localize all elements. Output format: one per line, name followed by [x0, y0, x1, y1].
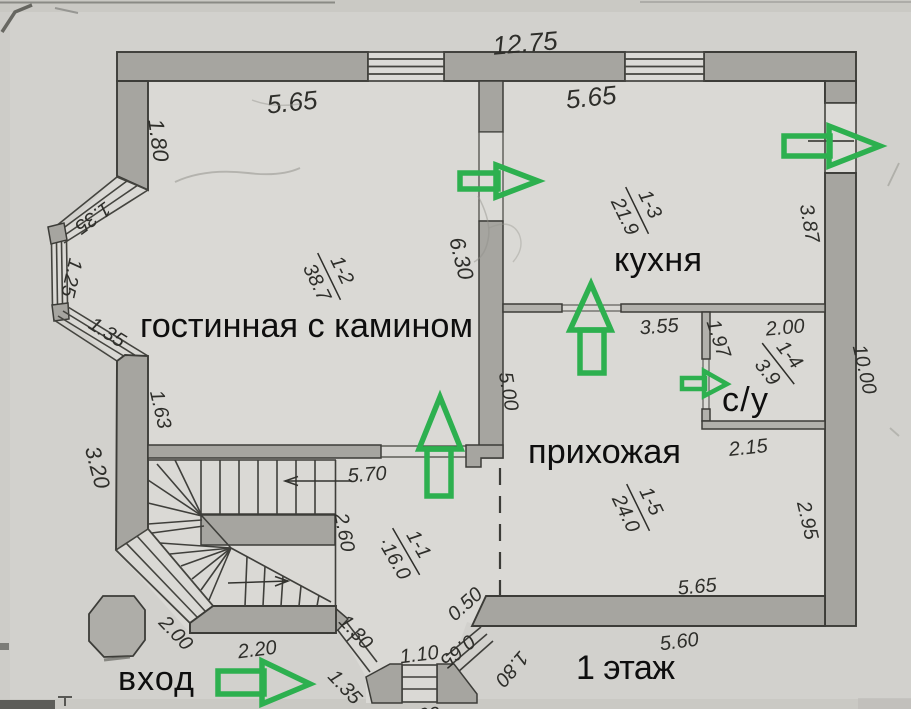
- svg-text:12.75: 12.75: [491, 25, 559, 61]
- svg-text:1 этаж: 1 этаж: [576, 649, 675, 687]
- svg-text:5.65: 5.65: [564, 79, 618, 114]
- svg-text:кухня: кухня: [614, 241, 702, 279]
- svg-text:5.65: 5.65: [265, 84, 319, 119]
- svg-text:2.15: 2.15: [727, 435, 770, 461]
- svg-text:вход: вход: [118, 660, 194, 698]
- svg-text:5.65: 5.65: [677, 574, 719, 599]
- svg-text:5.70: 5.70: [347, 463, 387, 488]
- svg-text:прихожая: прихожая: [528, 433, 681, 471]
- svg-text:1.10: 1.10: [399, 642, 440, 669]
- svg-text:с/у: с/у: [722, 381, 768, 419]
- svg-text:гостинная с камином: гостинная с камином: [140, 307, 473, 345]
- svg-text:2.00: 2.00: [764, 315, 806, 340]
- svg-text:3.55: 3.55: [639, 315, 680, 340]
